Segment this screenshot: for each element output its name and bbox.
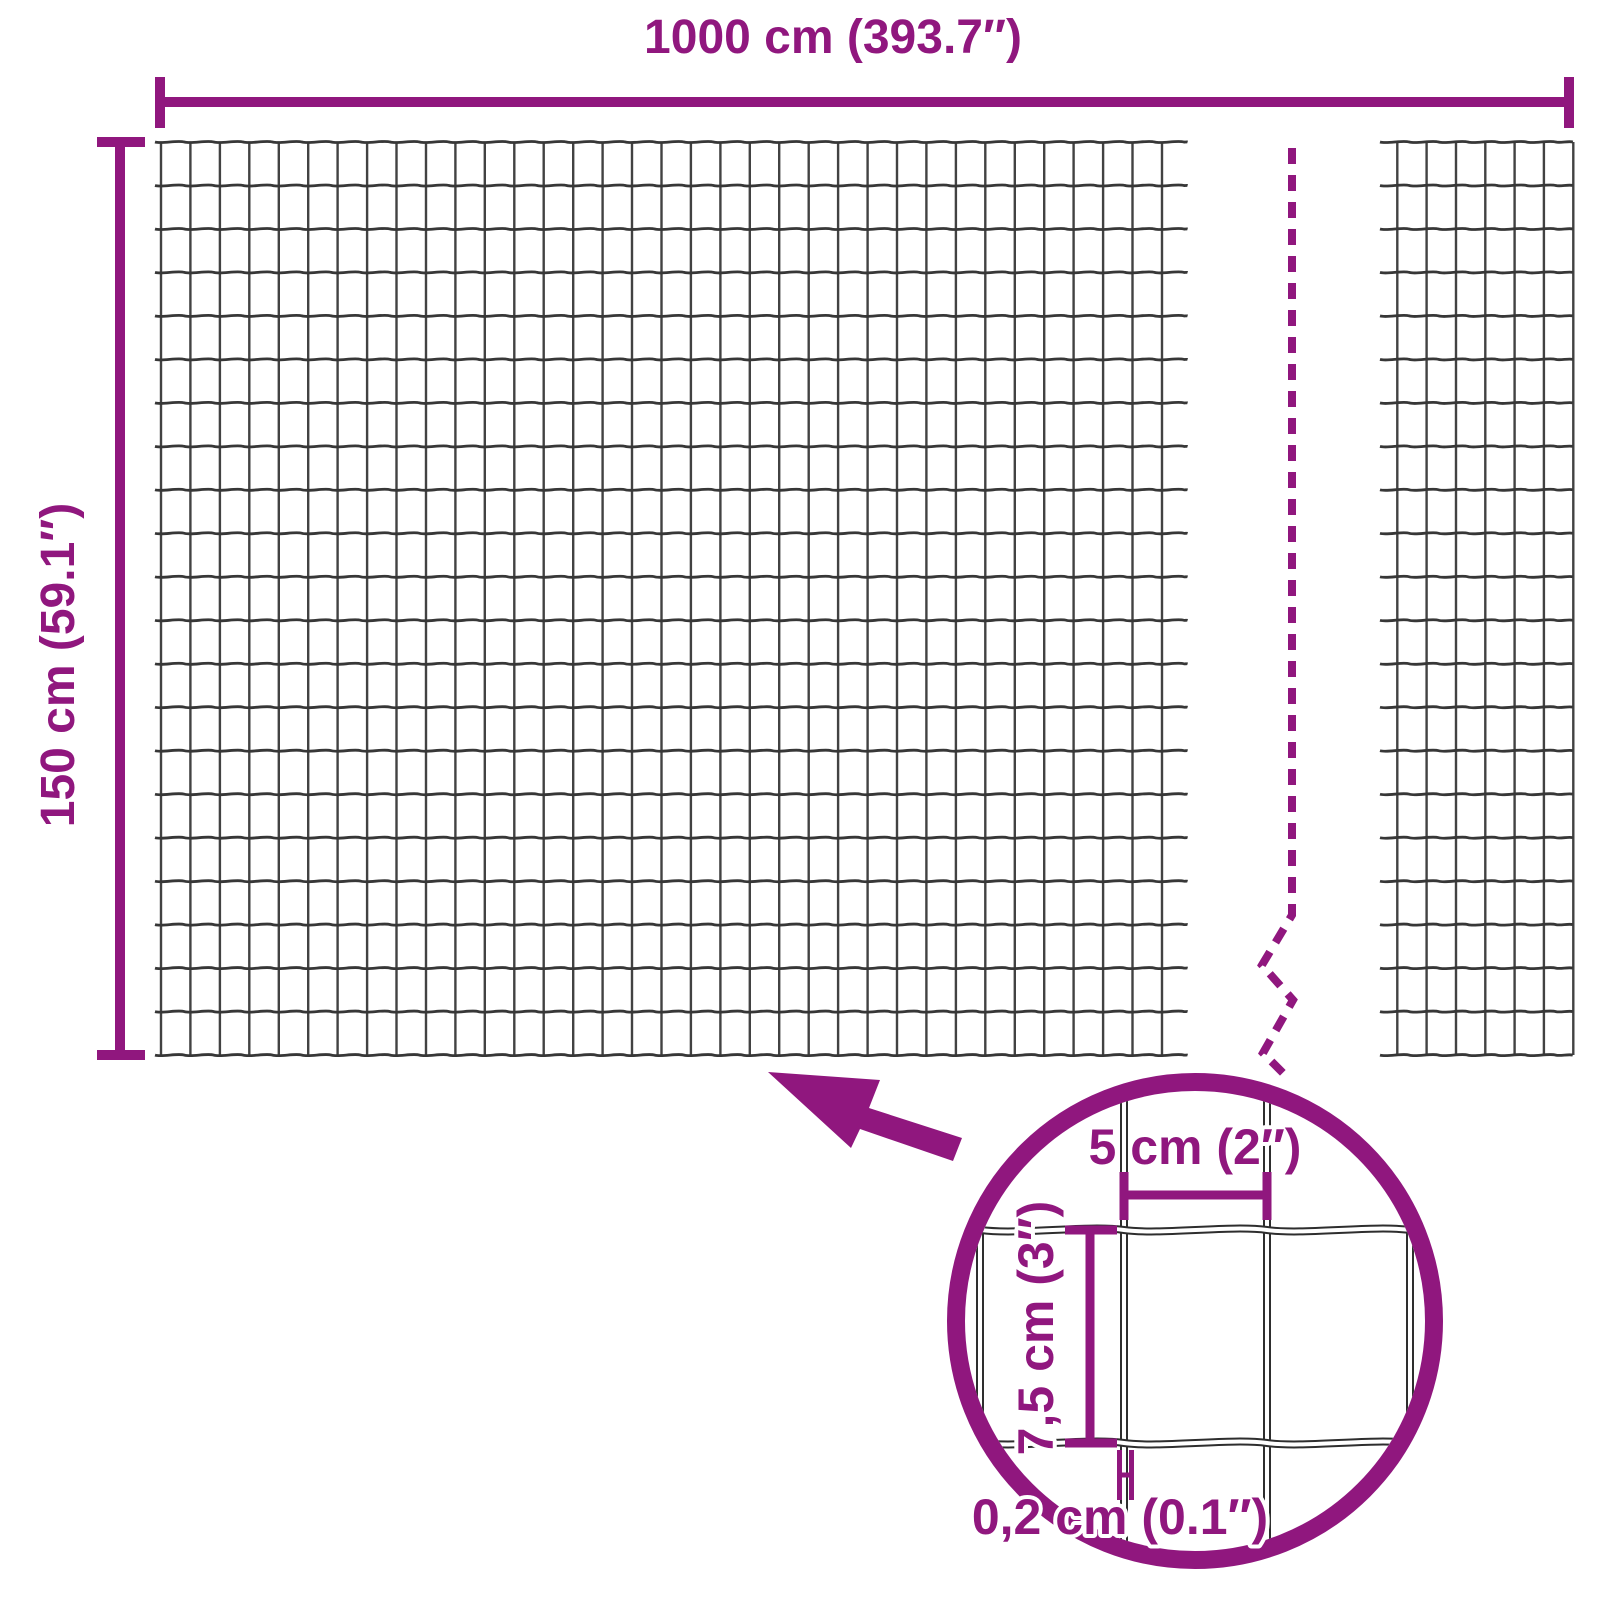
mesh-opening-width-label: 5 cm (2″) xyxy=(1089,1119,1302,1175)
mesh-panel-continuation xyxy=(1380,141,1573,1055)
width-dimension-line xyxy=(160,77,1569,128)
wire-thickness-label: 0,2 cm (0.1″) xyxy=(972,1489,1268,1545)
mesh-horizontal-wires xyxy=(155,141,1188,1055)
diagram-canvas: 1000 cm (393.7″) 150 cm (59.1″) 5 cm (2″… xyxy=(0,0,1600,1600)
width-dimension-label: 1000 cm (393.7″) xyxy=(644,11,1022,64)
zoom-arrow-icon xyxy=(768,1072,962,1161)
width-dimension: 1000 cm (393.7″) xyxy=(160,11,1569,128)
mesh-vertical-wires xyxy=(161,142,1162,1055)
fence-dimension-diagram: 1000 cm (393.7″) 150 cm (59.1″) 5 cm (2″… xyxy=(0,0,1600,1600)
mesh-opening-height-label: 7,5 cm (3″) xyxy=(1008,1201,1064,1456)
height-dimension-label: 150 cm (59.1″) xyxy=(32,503,85,828)
mesh-vertical-wires xyxy=(1397,142,1573,1055)
break-dashed-line xyxy=(1262,148,1293,1074)
mesh-panel-main xyxy=(155,141,1188,1055)
height-dimension: 150 cm (59.1″) xyxy=(32,142,145,1055)
height-dimension-line xyxy=(97,142,145,1055)
